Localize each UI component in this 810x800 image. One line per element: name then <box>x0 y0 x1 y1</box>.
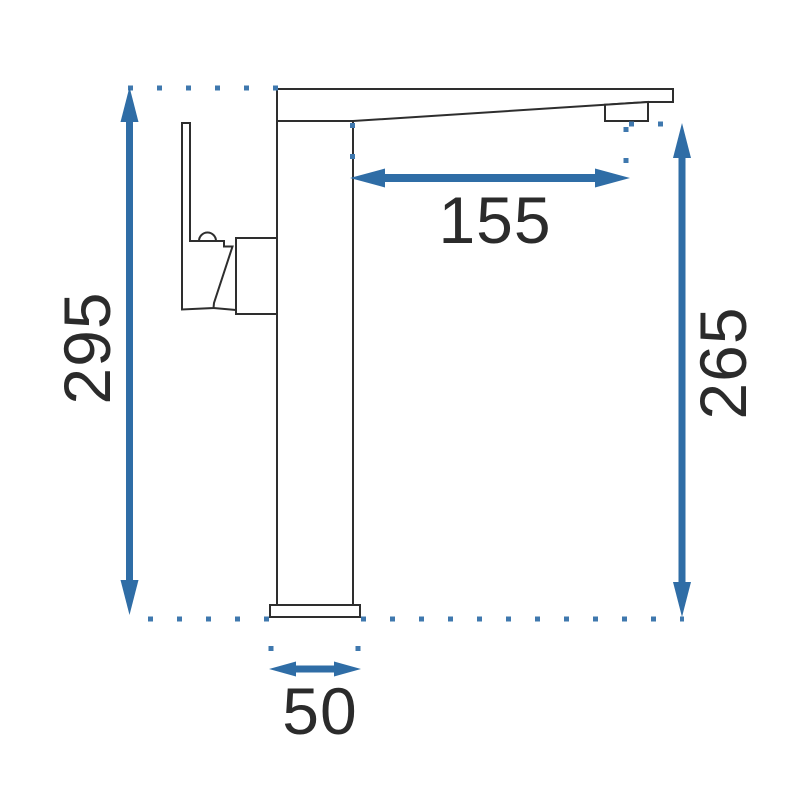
dim-arrow-total-height-head-bottom <box>121 580 139 615</box>
dim-arrow-spout-reach-shaft <box>381 174 599 182</box>
faucet-handle-connector <box>214 308 237 310</box>
dim-arrow-outlet-height-head-bottom <box>673 582 691 617</box>
faucet-dimension-diagram: 295 155 265 50 <box>0 0 810 800</box>
faucet-base-flange <box>270 605 360 617</box>
faucet-handle-dome <box>199 233 216 242</box>
dim-label-outlet-height: 265 <box>686 306 760 419</box>
faucet-valve-housing <box>236 238 278 314</box>
dim-arrow-spout-reach-head-left <box>350 169 385 188</box>
dim-arrow-base-width-shaft <box>292 666 338 673</box>
faucet-aerator <box>605 102 648 121</box>
diagram-canvas: 295 155 265 50 <box>0 0 810 800</box>
faucet-outline-group <box>182 89 673 617</box>
dim-arrow-outlet-height-head-top <box>673 123 691 158</box>
dim-arrow-spout-reach-head-right <box>595 169 630 188</box>
dim-label-total-height: 295 <box>50 291 124 404</box>
dim-label-base-width: 50 <box>282 674 357 748</box>
faucet-handle-lever <box>182 123 233 310</box>
dim-arrow-outlet-height-shaft <box>679 155 686 584</box>
dim-arrow-total-height-head-top <box>121 87 139 122</box>
dim-label-spout-reach: 155 <box>438 183 551 257</box>
dim-arrow-total-height-shaft <box>126 118 133 584</box>
faucet-body-column <box>277 121 353 605</box>
